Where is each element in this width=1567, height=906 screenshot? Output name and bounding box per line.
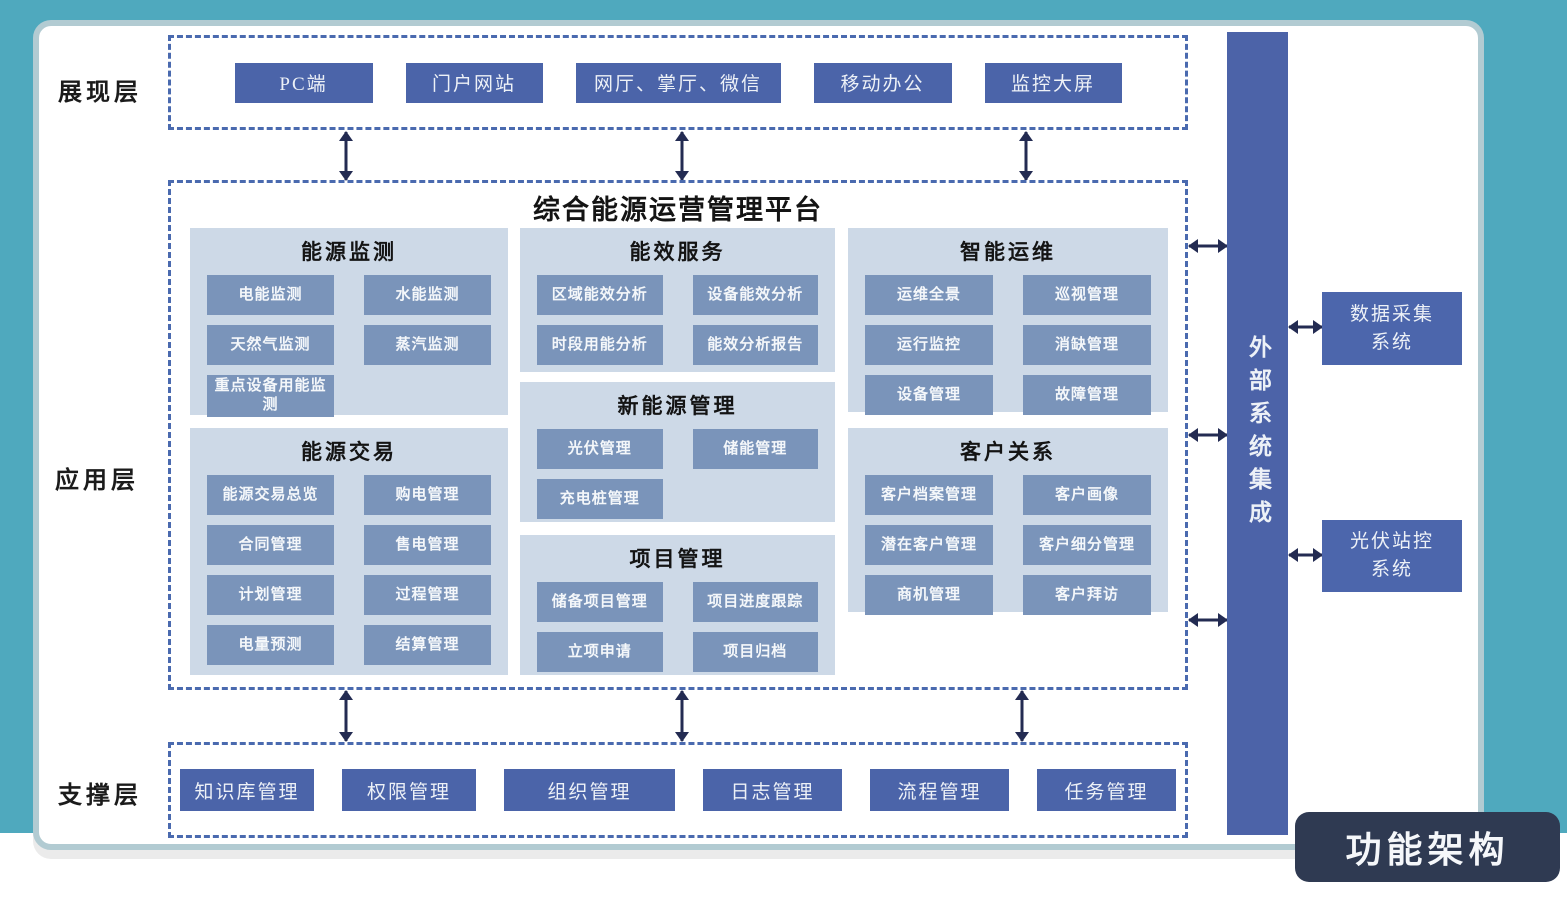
- module-button: 项目归档: [693, 632, 819, 672]
- module-button: 储能管理: [693, 429, 819, 469]
- module-button: 运行监控: [865, 325, 993, 365]
- module-button: 售电管理: [364, 525, 491, 565]
- group-energy-monitoring: 能源监测 电能监测 水能监测 天然气监测 蒸汽监测 重点设备用能监测: [190, 228, 508, 415]
- group-items: 客户档案管理 客户画像 潜在客户管理 客户细分管理 商机管理 客户拜访: [848, 470, 1168, 615]
- module-button: 巡视管理: [1023, 275, 1151, 315]
- application-layer-label: 应用层: [55, 460, 139, 495]
- module-button: 能源交易总览: [207, 475, 334, 515]
- module-button: 重点设备用能监测: [207, 375, 334, 417]
- group-title: 能源监测: [190, 236, 508, 266]
- module-button: 合同管理: [207, 525, 334, 565]
- external-system-integration-bar: 外部系统集成: [1227, 32, 1288, 835]
- module-button: 设备能效分析: [693, 275, 819, 315]
- support-layer-label: 支撑层: [58, 775, 142, 810]
- group-items: 运维全景 巡视管理 运行监控 消缺管理 设备管理 故障管理: [848, 270, 1168, 415]
- group-title: 能效服务: [520, 236, 835, 266]
- external-bar-label: 外部系统集成: [1241, 335, 1275, 533]
- module-button: 客户档案管理: [865, 475, 993, 515]
- group-customer-relations: 客户关系 客户档案管理 客户画像 潜在客户管理 客户细分管理 商机管理 客户拜访: [848, 428, 1168, 612]
- group-title: 客户关系: [848, 436, 1168, 466]
- module-button: 能效分析报告: [693, 325, 819, 365]
- bidirectional-arrow: [1289, 320, 1322, 334]
- group-title: 能源交易: [190, 436, 508, 466]
- presentation-item-portal: 门户网站: [406, 63, 543, 103]
- platform-title: 综合能源运营管理平台: [168, 188, 1188, 227]
- external-system-pv-station-control: 光伏站控系统: [1322, 520, 1462, 592]
- group-new-energy: 新能源管理 光伏管理 储能管理 充电桩管理: [520, 382, 835, 522]
- bidirectional-arrow: [1189, 239, 1227, 253]
- group-items: 能源交易总览 购电管理 合同管理 售电管理 计划管理 过程管理 电量预测 结算管…: [190, 470, 508, 665]
- module-button: 客户细分管理: [1023, 525, 1151, 565]
- group-energy-trading: 能源交易 能源交易总览 购电管理 合同管理 售电管理 计划管理 过程管理 电量预…: [190, 428, 508, 675]
- module-button: 充电桩管理: [537, 479, 663, 519]
- module-button: 时段用能分析: [537, 325, 663, 365]
- presentation-layer-items: PC端 门户网站 网厅、掌厅、微信 移动办公 监控大屏: [168, 35, 1188, 130]
- module-button: 项目进度跟踪: [693, 582, 819, 622]
- module-button: 客户画像: [1023, 475, 1151, 515]
- module-button: 消缺管理: [1023, 325, 1151, 365]
- module-button: 商机管理: [865, 575, 993, 615]
- support-item-knowledge-base: 知识库管理: [180, 769, 314, 811]
- module-button: 计划管理: [207, 575, 334, 615]
- bidirectional-arrow: [1189, 613, 1227, 627]
- module-button: 光伏管理: [537, 429, 663, 469]
- bidirectional-arrow: [1019, 132, 1033, 180]
- module-button: 设备管理: [865, 375, 993, 415]
- support-item-organization: 组织管理: [504, 769, 675, 811]
- module-button: 天然气监测: [207, 325, 334, 365]
- module-button: 潜在客户管理: [865, 525, 993, 565]
- module-button: 水能监测: [364, 275, 491, 315]
- presentation-item-pc: PC端: [235, 63, 373, 103]
- presentation-item-mobile-office: 移动办公: [814, 63, 952, 103]
- group-title: 项目管理: [520, 543, 835, 573]
- module-button: 故障管理: [1023, 375, 1151, 415]
- bidirectional-arrow: [1015, 691, 1029, 741]
- module-button: 过程管理: [364, 575, 491, 615]
- group-project-management: 项目管理 储备项目管理 项目进度跟踪 立项申请 项目归档: [520, 535, 835, 675]
- presentation-layer-label: 展现层: [58, 72, 142, 107]
- module-button: 客户拜访: [1023, 575, 1151, 615]
- module-button: 区域能效分析: [537, 275, 663, 315]
- group-items: 储备项目管理 项目进度跟踪 立项申请 项目归档: [520, 577, 835, 672]
- bidirectional-arrow: [1189, 428, 1227, 442]
- presentation-item-halls-wechat: 网厅、掌厅、微信: [576, 63, 781, 103]
- bidirectional-arrow: [1289, 548, 1322, 562]
- module-button: 结算管理: [364, 625, 491, 665]
- group-items: 光伏管理 储能管理 充电桩管理: [520, 424, 835, 519]
- support-item-logs: 日志管理: [703, 769, 842, 811]
- bidirectional-arrow: [339, 691, 353, 741]
- functional-architecture-diagram: 展现层 应用层 支撑层 PC端 门户网站 网厅、掌厅、微信 移动办公 监控大屏 …: [0, 0, 1567, 906]
- external-system-data-acquisition: 数据采集系统: [1322, 292, 1462, 365]
- module-button: 购电管理: [364, 475, 491, 515]
- module-button: 储备项目管理: [537, 582, 663, 622]
- group-title: 新能源管理: [520, 390, 835, 420]
- group-items: 区域能效分析 设备能效分析 时段用能分析 能效分析报告: [520, 270, 835, 365]
- group-title: 智能运维: [848, 236, 1168, 266]
- bidirectional-arrow: [675, 691, 689, 741]
- group-items: 电能监测 水能监测 天然气监测 蒸汽监测 重点设备用能监测: [190, 270, 508, 417]
- module-button: 立项申请: [537, 632, 663, 672]
- group-intelligent-om: 智能运维 运维全景 巡视管理 运行监控 消缺管理 设备管理 故障管理: [848, 228, 1168, 412]
- module-button: 电量预测: [207, 625, 334, 665]
- bidirectional-arrow: [339, 132, 353, 180]
- support-item-permissions: 权限管理: [342, 769, 476, 811]
- diagram-title-badge: 功能架构: [1295, 812, 1560, 882]
- module-button: 蒸汽监测: [364, 325, 491, 365]
- module-button: 电能监测: [207, 275, 334, 315]
- module-button: 运维全景: [865, 275, 993, 315]
- group-energy-efficiency: 能效服务 区域能效分析 设备能效分析 时段用能分析 能效分析报告: [520, 228, 835, 372]
- support-layer-items: 知识库管理 权限管理 组织管理 日志管理 流程管理 任务管理: [168, 742, 1188, 838]
- presentation-item-monitoring-screen: 监控大屏: [985, 63, 1122, 103]
- support-item-process: 流程管理: [870, 769, 1009, 811]
- bidirectional-arrow: [675, 132, 689, 180]
- support-item-tasks: 任务管理: [1037, 769, 1176, 811]
